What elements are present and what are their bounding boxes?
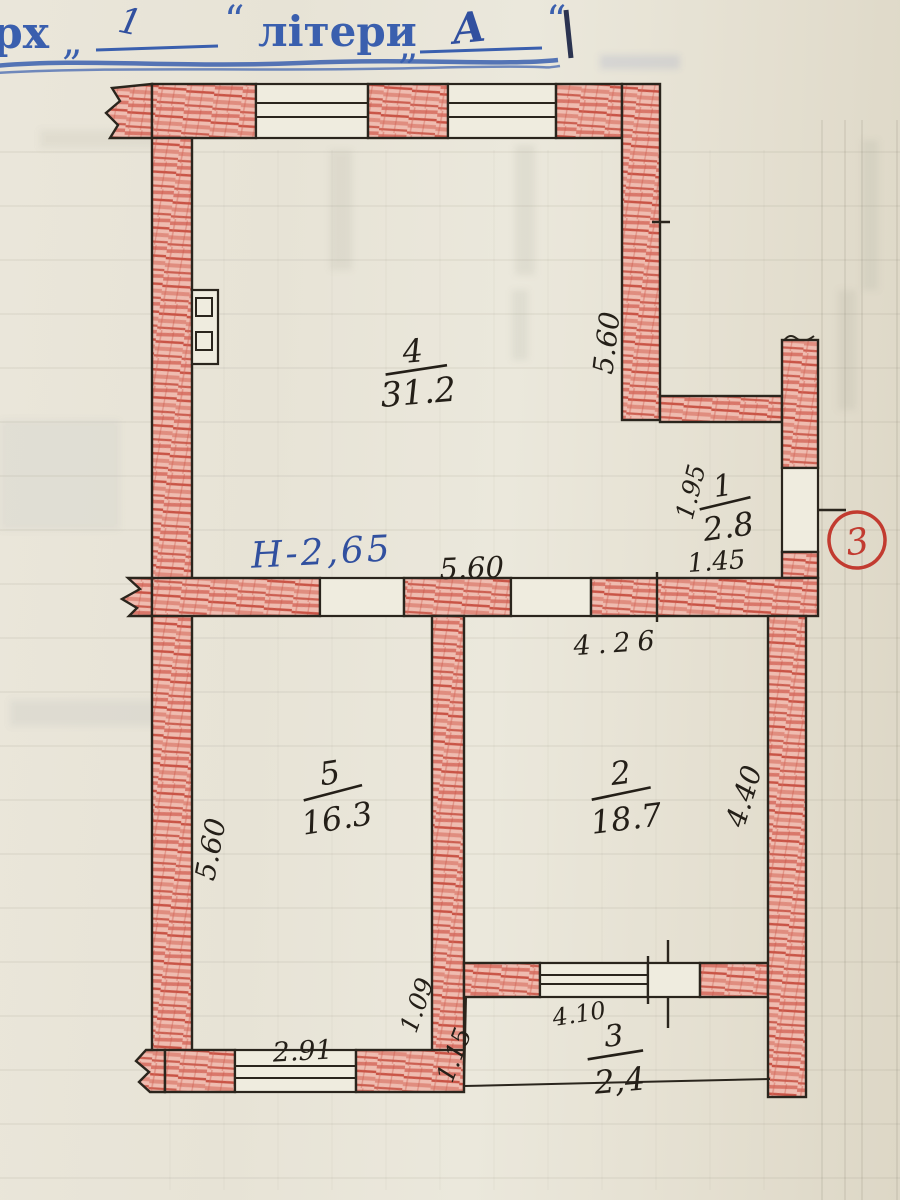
scanned-floorplan-page: рх „ 1 “ літери „ А “ — [0, 0, 900, 1200]
room5-number: 5 — [317, 753, 343, 794]
room5-label: 5 16.3 — [292, 749, 376, 843]
flue-duct — [196, 298, 212, 316]
dim-room4-bottom: 5.60 — [439, 550, 505, 586]
balcony-left-wall-arm — [464, 963, 540, 997]
room4-number: 4 — [400, 331, 425, 371]
letter-value-handwritten: А — [446, 1, 488, 54]
room4-label: 4 31.2 — [375, 329, 457, 416]
form-header: рх „ 1 “ літери „ А “ — [0, 0, 571, 73]
header-stub-text: рх — [0, 8, 50, 59]
floor-value-handwritten: 1 — [115, 0, 146, 45]
dim-room2-right: 4.40 — [719, 762, 769, 832]
room2-number: 2 — [607, 753, 633, 793]
room1-top-wall — [660, 396, 782, 422]
right-exterior-wall-upper — [782, 336, 846, 578]
open-quote-1: „ — [62, 18, 83, 64]
entrance-number-stamp: 3 — [825, 508, 888, 571]
floorplan-canvas: рх „ 1 “ літери „ А “ — [0, 0, 900, 1200]
window — [256, 84, 368, 138]
flue-duct — [196, 332, 212, 350]
letters-label: літери — [258, 7, 417, 56]
dim-room4-right: 5.60 — [586, 310, 626, 376]
close-quote-2: “ — [546, 0, 566, 44]
room3-area: 2,4 — [592, 1059, 647, 1101]
right-exterior-wall-lower — [768, 616, 806, 1097]
header-wavy-underline-2 — [0, 66, 560, 73]
entrance-number: 3 — [843, 521, 871, 565]
top-exterior-wall — [106, 84, 622, 138]
dim-room5-left: 5.60 — [189, 815, 233, 882]
balcony-door-opening — [648, 963, 700, 997]
header-wavy-underline — [0, 60, 558, 66]
window — [448, 84, 556, 138]
wall-break-symbol — [136, 1050, 165, 1092]
door-opening — [320, 578, 404, 616]
room4-area: 31.2 — [379, 370, 458, 416]
header-divider-bar — [566, 10, 571, 58]
room1-area: 2.8 — [700, 504, 757, 549]
room2-area: 18.7 — [589, 795, 665, 841]
room1-number: 1 — [711, 468, 735, 505]
dim-balcony-top: 4.10 — [549, 996, 607, 1032]
room3-label: 3 2,4 — [584, 1017, 647, 1103]
floor-blank-underline — [96, 46, 218, 50]
dim-bottom-window: 2.91 — [271, 1034, 334, 1068]
walls — [106, 84, 846, 1097]
room5-area: 16.3 — [299, 794, 375, 843]
room4-right-wall — [622, 84, 670, 420]
door-opening — [511, 578, 591, 616]
room2-label: 2 18.7 — [583, 750, 665, 842]
close-quote-1: “ — [224, 0, 244, 44]
window — [540, 963, 648, 997]
dim-room1-bottom: 1.45 — [687, 545, 747, 579]
dim-room2-top: 4.26 — [572, 625, 663, 662]
ceiling-height-note: Н-2,65 — [249, 528, 394, 576]
wall-break-symbol — [106, 84, 152, 138]
entrance-door-opening — [782, 468, 818, 552]
